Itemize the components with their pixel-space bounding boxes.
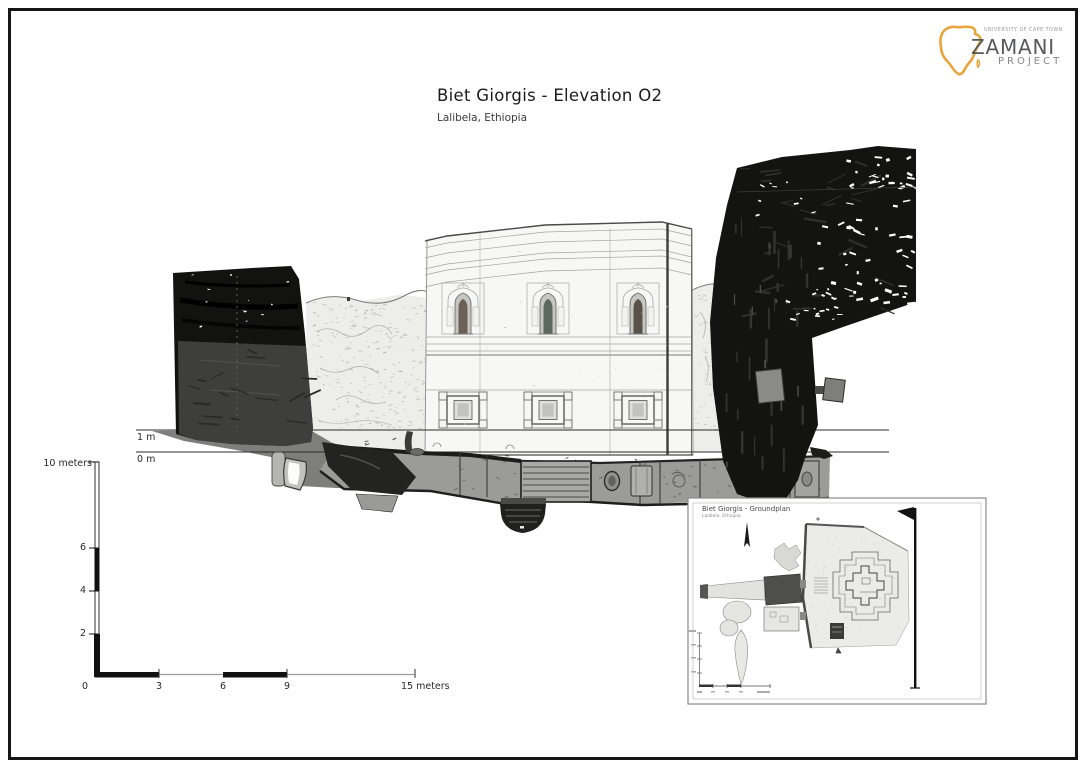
vertical-scale-bar — [89, 462, 100, 677]
hscale-tick-3: 3 — [152, 681, 166, 692]
page-title: Biet Giorgis - Elevation O2 — [437, 86, 662, 105]
ref-line-label-1m: 1 m — [137, 432, 155, 443]
vscale-tick-2: 2 — [70, 628, 86, 639]
staircase — [521, 461, 591, 502]
vscale-top-label: 10 meters — [40, 458, 92, 469]
vscale-tick-6: 6 — [70, 542, 86, 553]
inset-groundplan — [687, 498, 986, 704]
horizontal-scale-bar — [95, 669, 415, 678]
left-rock-mass — [173, 266, 321, 446]
inset-dark-feature — [830, 623, 844, 639]
hscale-end-label: 15 meters — [401, 681, 450, 692]
elevation-drawing — [0, 0, 1086, 768]
inset-subtitle: Lalibela, Ethiopia — [702, 514, 741, 519]
hscale-tick-9: 9 — [280, 681, 294, 692]
inset-title: Biet Giorgis - Groundplan — [702, 505, 790, 513]
church-facade — [425, 222, 693, 455]
ref-line-label-0m: 0 m — [137, 454, 155, 465]
scale-origin-label: 0 — [78, 681, 92, 692]
well-feature — [500, 498, 546, 533]
page-subtitle: Lalibela, Ethiopia — [437, 112, 527, 124]
drawing-sheet: Biet Giorgis - Elevation O2 Lalibela, Et… — [0, 0, 1086, 768]
logo-university-text: UNIVERSITY OF CAPE TOWN — [984, 28, 1063, 33]
vscale-tick-4: 4 — [70, 585, 86, 596]
zamani-logo: UNIVERSITY OF CAPE TOWN ZAMANI PROJECT — [928, 16, 1080, 80]
hscale-tick-6: 6 — [216, 681, 230, 692]
logo-subname-text: PROJECT — [998, 56, 1062, 67]
